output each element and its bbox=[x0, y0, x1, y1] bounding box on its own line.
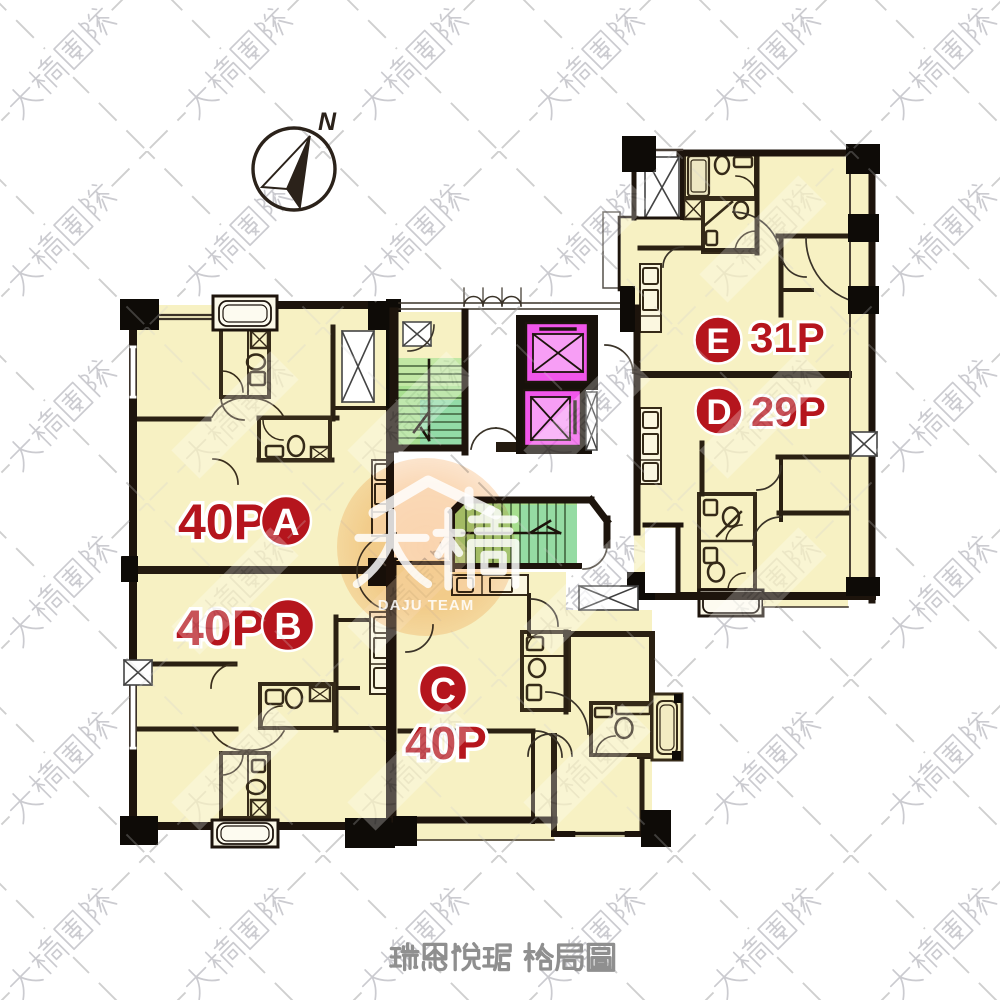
svg-text:N: N bbox=[318, 108, 337, 136]
svg-text:DAJU TEAM: DAJU TEAM bbox=[378, 597, 475, 614]
